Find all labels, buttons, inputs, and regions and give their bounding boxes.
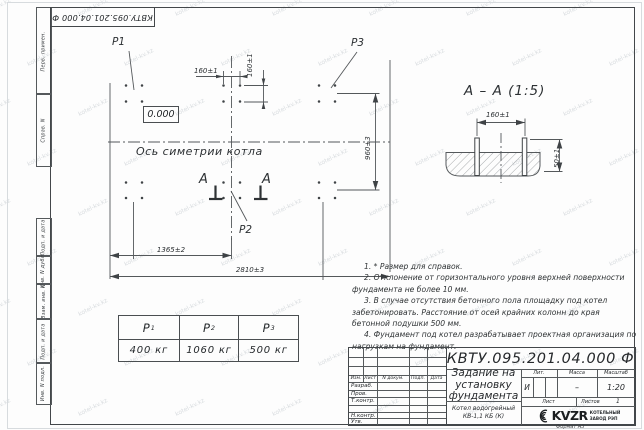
load-point-label-p1: P1	[112, 36, 125, 48]
note-1: 1. * Размер для справок.	[352, 261, 638, 272]
note-3: 3. В случае отсутствия бетонного пола пл…	[352, 295, 638, 329]
scale-label: Масштаб	[597, 369, 635, 377]
load-point-label-p2: P2	[239, 224, 252, 236]
margin-stamp-label: Инв. N подл.	[42, 366, 47, 401]
logo-caption-line1: КОТЕЛЬНЫЙ	[590, 410, 621, 415]
margin-stamp-podp-data-1: Подп. и дата	[36, 218, 52, 257]
margin-stamp-label: Подп. и дата	[42, 219, 47, 255]
dim-bolt-spacing-v: 160±1	[246, 53, 254, 77]
section-title: А – А (1:5)	[464, 83, 545, 99]
lit-value: И	[521, 377, 533, 397]
top-stamp-doc-number: КВТУ.095.201.04.000 Ф	[52, 13, 153, 22]
sign-row-razrab: Разраб.	[351, 383, 373, 389]
loads-value-p2: 1060 кг	[179, 339, 239, 361]
margin-stamp-label: Справ. N	[42, 118, 47, 142]
elevation-mark: 0.000	[143, 106, 179, 123]
margin-stamp-vzam-inv: Взам. инв. N	[36, 283, 52, 320]
rev-col-ndocum: N докум.	[377, 375, 409, 382]
loads-header-p2: P2	[179, 316, 239, 339]
mass-label: Масса	[557, 369, 597, 377]
sheet-label: Лист	[521, 397, 576, 406]
scale-value: 1:20	[597, 377, 635, 397]
loads-header-p3: P3	[238, 316, 298, 339]
loads-value-p1: 400 кг	[119, 339, 179, 361]
format-note: Формат А3	[556, 424, 584, 430]
loads-value-p3: 500 кг	[238, 339, 298, 361]
logo-caption: КОТЕЛЬНЫЙ ЗАВОД РЭП	[590, 410, 621, 420]
note-2: 2. Отклонение от горизонтального уровня …	[352, 272, 638, 295]
rev-col-data: Дата	[427, 375, 446, 382]
sign-row-utv: Утв.	[351, 419, 363, 425]
margin-stamp-label: Взам. инв. N	[42, 284, 47, 319]
lit-label: Лит.	[521, 369, 557, 377]
dim-plan-height-960: 960±3	[364, 136, 372, 160]
margin-stamp-podp-data-2: Подп. и дата	[36, 318, 52, 364]
loads-table: P1 P2 P3 400 кг 1060 кг 500 кг	[118, 315, 299, 362]
doc-number: КВТУ.095.201.04.000 Ф	[446, 348, 635, 369]
dim-left-span-1365: 1365±2	[149, 246, 193, 254]
mass-value: –	[557, 377, 597, 397]
margin-stamp-inv-dubl: Инв. N дубл.	[36, 255, 52, 285]
technical-notes: 1. * Размер для справок. 2. Отклонение о…	[352, 261, 638, 352]
drawing-sheet: kotel-kv.kzkotel-kv.kzkotel-kv.kzkotel-k…	[0, 0, 644, 430]
rev-col-podp: Подп.	[409, 375, 427, 382]
rev-col-list: Лист	[363, 375, 377, 382]
margin-stamp-label: Подп. и дата	[42, 323, 47, 359]
sign-row-prov: Пров.	[351, 391, 367, 397]
dim-bolt-spacing-h: 160±1	[194, 67, 218, 75]
section-letter-right: А	[262, 172, 271, 187]
elevation-value: 0.000	[147, 109, 174, 120]
logo-cell: KVZR КОТЕЛЬНЫЙ ЗАВОД РЭП	[521, 406, 635, 425]
logo-text: KVZR	[552, 408, 588, 423]
dim-section-protrusion-50: 50±1	[553, 149, 561, 168]
kvzr-logo-icon	[536, 408, 550, 424]
sign-row-nkontr: Н.контр.	[351, 413, 376, 419]
load-point-label-p3: P3	[351, 37, 364, 49]
top-rotated-stamp: КВТУ.095.201.04.000 Ф	[50, 7, 155, 27]
sheets-value: 1	[616, 398, 620, 405]
dim-section-bolt-spacing: 160±1	[486, 111, 510, 119]
section-letter-left: А	[199, 172, 208, 187]
axis-of-symmetry-label: Ось симетрии котла	[136, 145, 263, 158]
sign-row-tkontr: Т.контр.	[351, 398, 375, 404]
dim-total-span-2810: 2810±3	[226, 266, 274, 274]
doc-title: Задание на установку фундамента	[448, 369, 519, 401]
margin-stamp-sprav-n: Справ. N	[36, 93, 52, 167]
sheets-label: Листов	[581, 399, 600, 405]
doc-subject: Котел водогрейный КВ-1,1 КБ (К)	[448, 401, 519, 425]
margin-stamp-label: Перв. примен.	[42, 31, 47, 71]
loads-header-p1: P1	[119, 316, 179, 339]
title-block: Изм. Лист N докум. Подп. Дата Разраб. Пр…	[348, 347, 636, 426]
rev-col-izm: Изм.	[349, 375, 363, 382]
logo-caption-line2: ЗАВОД РЭП	[590, 416, 621, 421]
margin-stamp-inv-podl: Инв. N подл.	[36, 362, 52, 405]
